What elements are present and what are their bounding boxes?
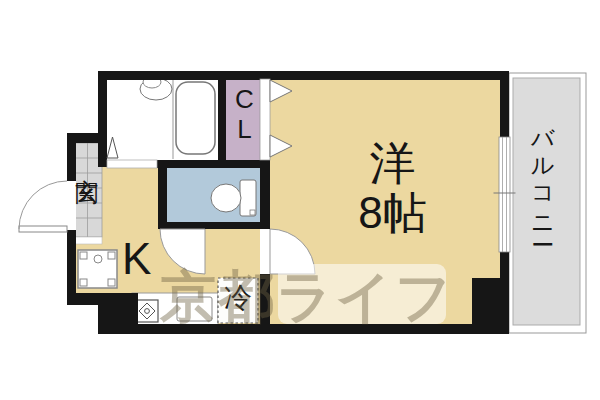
bathroom-door-threshold — [107, 160, 157, 168]
bathtub — [176, 82, 215, 154]
main-room-label-line2: 8帖 — [320, 189, 465, 237]
balcony-label: バルコニー — [530, 112, 555, 237]
kitchen-label: K — [122, 235, 151, 283]
watermark-text: 京都ライフ — [160, 260, 454, 336]
entrance-door-swing — [19, 181, 67, 229]
entrance-door-leaf — [19, 226, 67, 232]
floorplan-canvas: 玄関 CL K 洋 8帖 バルコニー 冷 京都ライフ — [0, 0, 600, 400]
entrance-label: 玄関 — [74, 160, 99, 170]
closet-door-strip — [260, 79, 270, 160]
toilet-bowl — [211, 184, 241, 212]
entrance-step — [73, 237, 102, 244]
main-room-label: 洋 8帖 — [320, 138, 465, 237]
toilet-detail — [250, 210, 255, 215]
washer-tap — [94, 255, 102, 263]
entrance-doorway — [67, 181, 76, 230]
balcony-window — [499, 137, 510, 252]
main-room-label-line1: 洋 — [320, 138, 465, 189]
closet-label: CL — [231, 85, 258, 145]
floorplan-drawing — [0, 0, 600, 400]
